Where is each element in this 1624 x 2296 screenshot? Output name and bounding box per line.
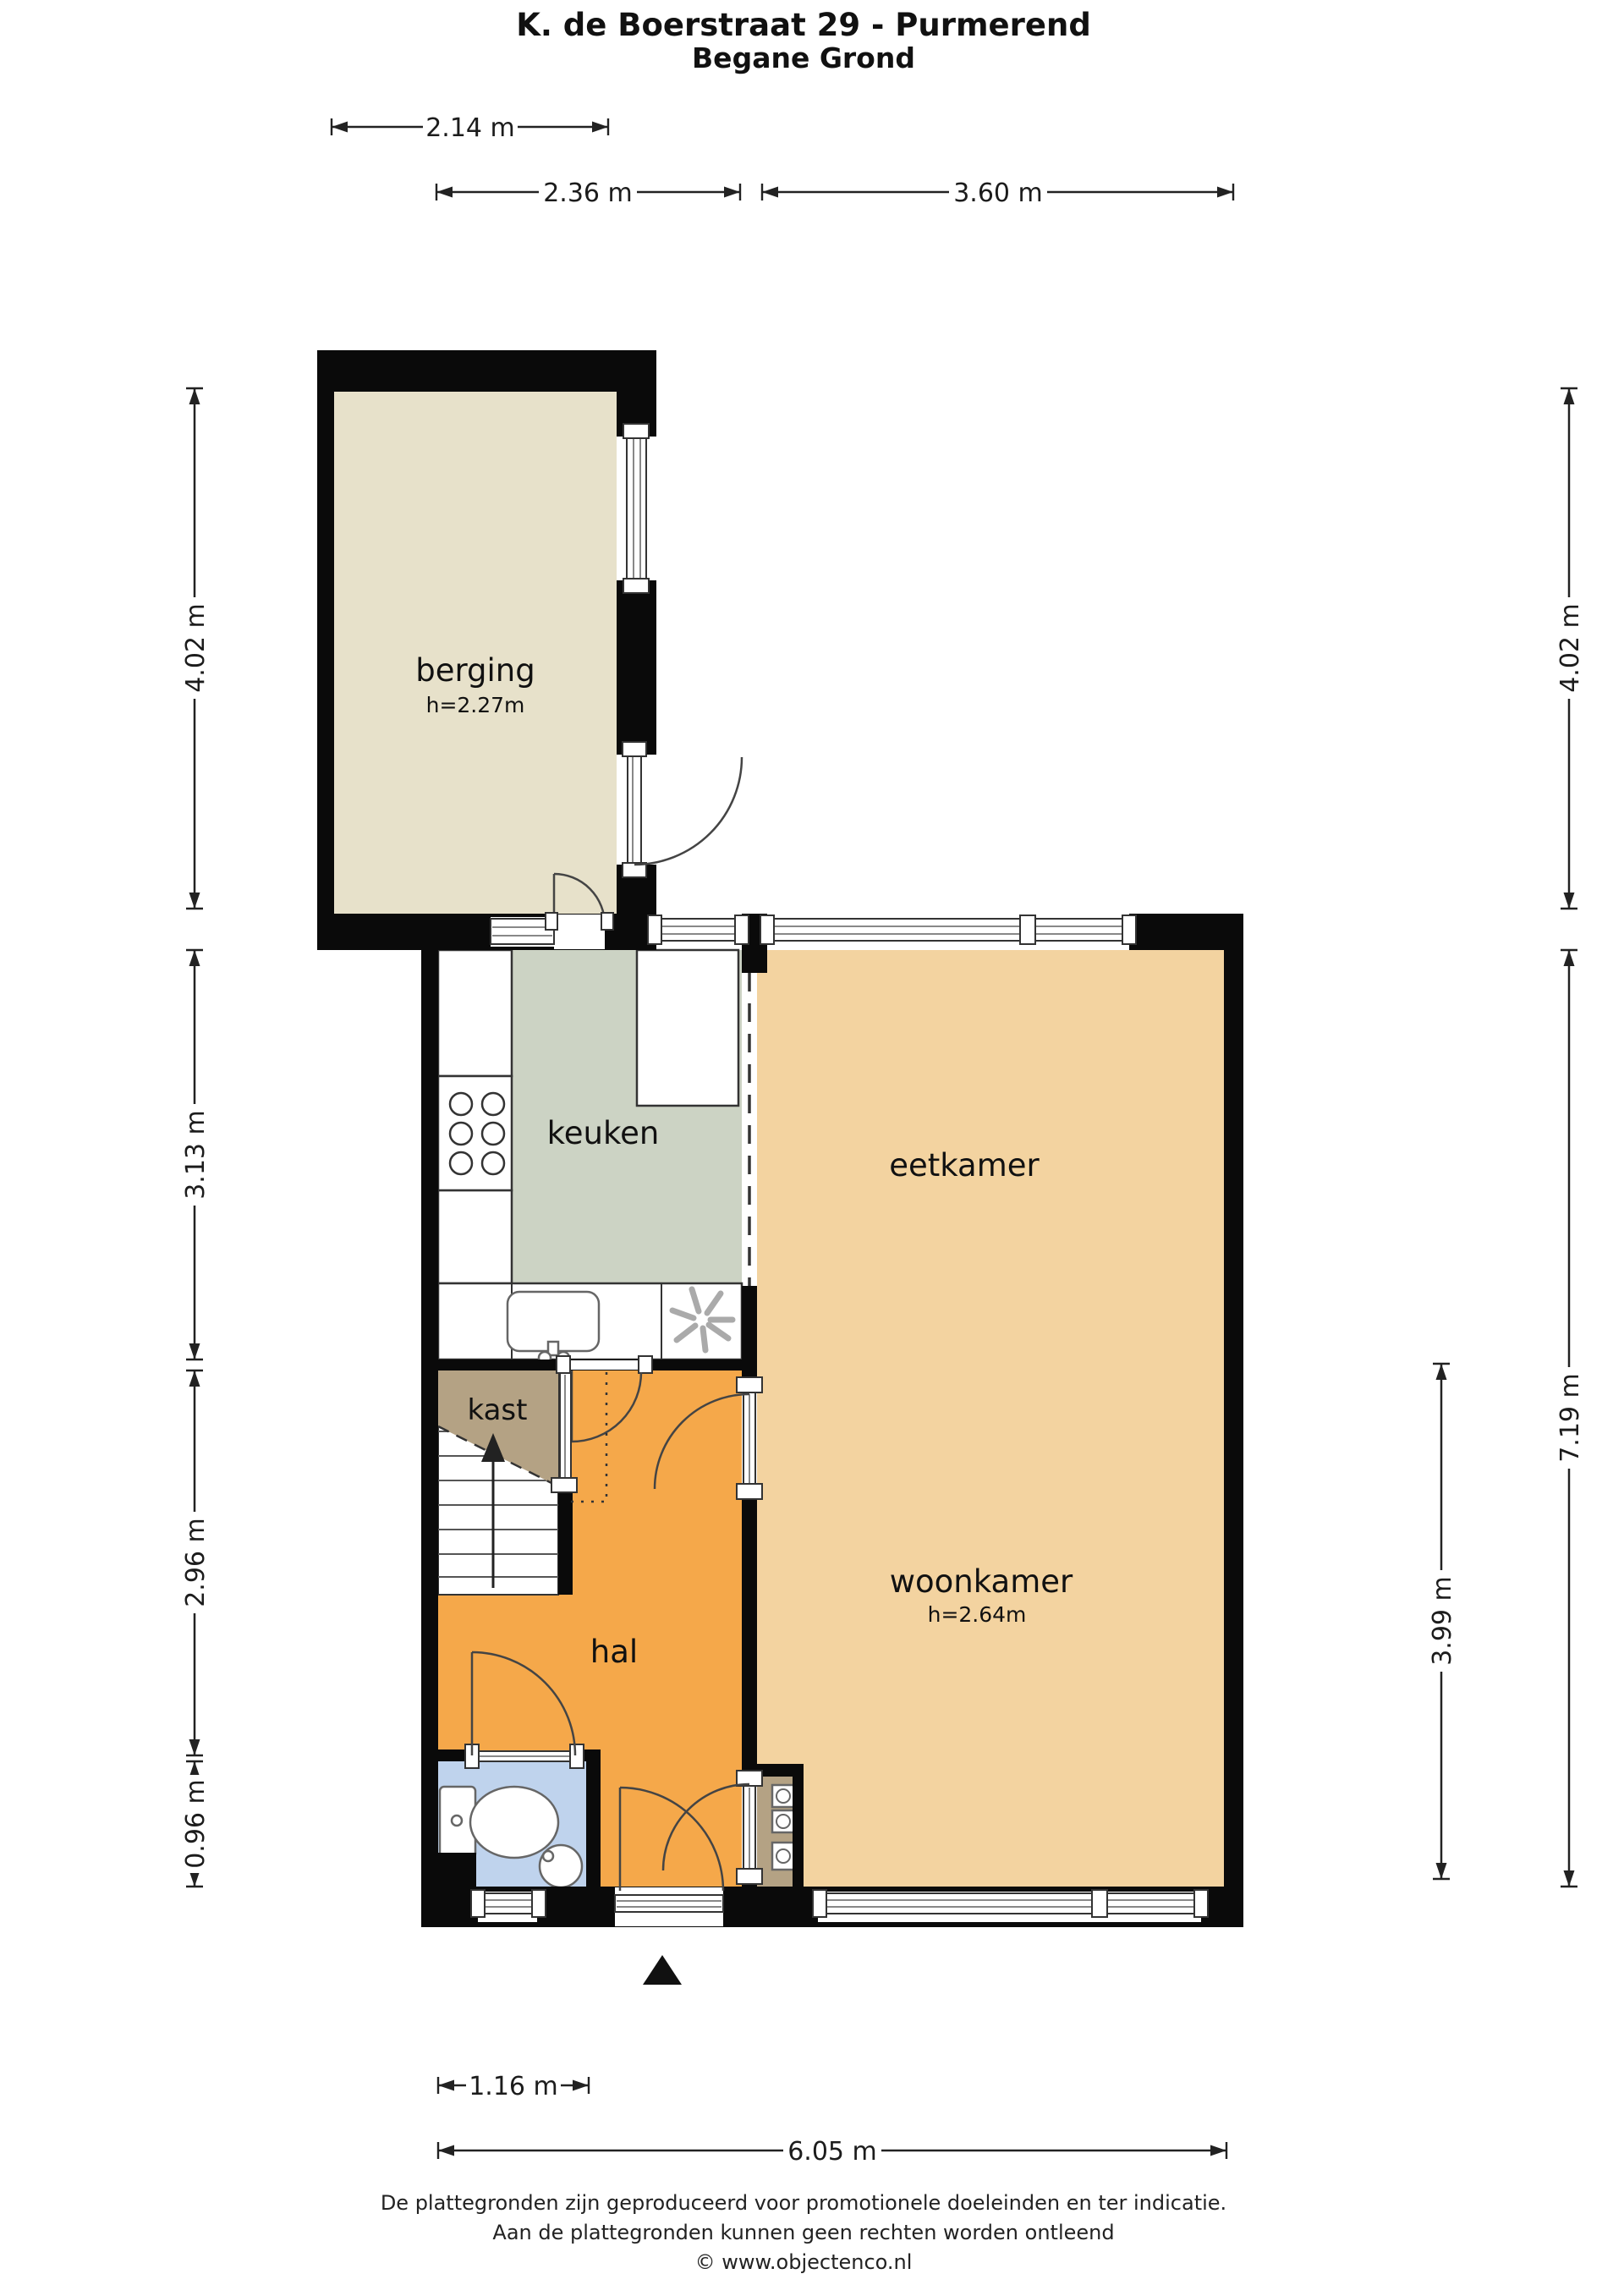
svg-text:4.02 m: 4.02 m: [1555, 603, 1585, 693]
svg-text:3.99 m: 3.99 m: [1428, 1576, 1457, 1666]
window-berging-keuken: [491, 919, 554, 944]
toilet-icon: [440, 1787, 558, 1858]
footer-line-1: De plattegronden zijn geproduceerd voor …: [381, 2191, 1226, 2215]
dimension-left-keuken: 3.13 m: [177, 950, 212, 1359]
room-height-berging: h=2.27m: [426, 693, 525, 717]
dimension-right-woonkamer: 3.99 m: [1424, 1364, 1459, 1879]
footer-line-2: Aan de plattegronden kunnen geen rechten…: [492, 2221, 1114, 2244]
footer: De plattegronden zijn geproduceerd voor …: [381, 2191, 1226, 2274]
svg-text:7.19 m: 7.19 m: [1555, 1373, 1585, 1463]
window-keuken-top: [648, 915, 749, 944]
room-label-hal: hal: [590, 1634, 638, 1670]
room-label-keuken: keuken: [547, 1115, 660, 1151]
hand-basin-icon: [540, 1845, 582, 1887]
footer-line-3: © www.objectenco.nl: [695, 2250, 913, 2274]
dimension-top-berging: 2.14 m: [332, 110, 608, 144]
room-label-kast: kast: [468, 1393, 528, 1427]
window-toilet-bottom: [471, 1890, 546, 1917]
kitchen-counter: [438, 1190, 512, 1283]
svg-text:2.36 m: 2.36 m: [543, 179, 633, 208]
window-eetkamer-top: [760, 915, 1136, 944]
svg-text:3.60 m: 3.60 m: [953, 179, 1043, 208]
svg-text:3.13 m: 3.13 m: [181, 1110, 211, 1200]
svg-text:2.96 m: 2.96 m: [181, 1518, 211, 1607]
door-berging-exterior: [623, 742, 742, 877]
page-subtitle: Begane Grond: [692, 41, 915, 74]
dimension-left-toilet: 0.96 m: [178, 1761, 211, 1887]
svg-text:2.14 m: 2.14 m: [425, 113, 515, 143]
svg-text:4.02 m: 4.02 m: [181, 603, 211, 693]
kitchen-cabinet: [637, 950, 738, 1106]
kitchen-counter: [438, 950, 512, 1076]
floorplan-page: K. de Boerstraat 29 - Purmerend Begane G…: [0, 0, 1624, 2296]
dimension-right-house: 7.19 m: [1551, 950, 1587, 1887]
svg-text:1.16 m: 1.16 m: [469, 2072, 558, 2101]
window-berging-right: [623, 424, 649, 593]
window-woonkamer-bottom: [813, 1890, 1208, 1917]
dimension-top-eetkamer: 3.60 m: [762, 175, 1233, 209]
dimension-left-berging: 4.02 m: [177, 388, 212, 909]
room-height-woonkamer: h=2.64m: [928, 1602, 1027, 1627]
dimension-top-keuken: 2.36 m: [436, 175, 740, 209]
dimension-bottom-house: 6.05 m: [438, 2134, 1226, 2167]
svg-text:6.05 m: 6.05 m: [787, 2137, 877, 2167]
dimension-right-berging: 4.02 m: [1551, 388, 1587, 909]
stove-icon: [438, 1076, 512, 1190]
floor-plan: K. de Boerstraat 29 - Purmerend Begane G…: [0, 0, 1624, 2296]
dimension-left-hal: 2.96 m: [177, 1370, 212, 1755]
room-label-berging: berging: [415, 652, 535, 689]
north-arrow-icon: [643, 1955, 682, 1985]
svg-text:0.96 m: 0.96 m: [181, 1779, 211, 1869]
room-label-eetkamer: eetkamer: [889, 1147, 1040, 1184]
dimension-bottom-entry: 1.16 m: [438, 2068, 589, 2102]
page-title: K. de Boerstraat 29 - Purmerend: [516, 7, 1091, 43]
meterkast-meters-icon: [772, 1785, 794, 1870]
room-living-dining-floor: [757, 950, 1224, 1887]
room-label-woonkamer: woonkamer: [890, 1563, 1073, 1600]
